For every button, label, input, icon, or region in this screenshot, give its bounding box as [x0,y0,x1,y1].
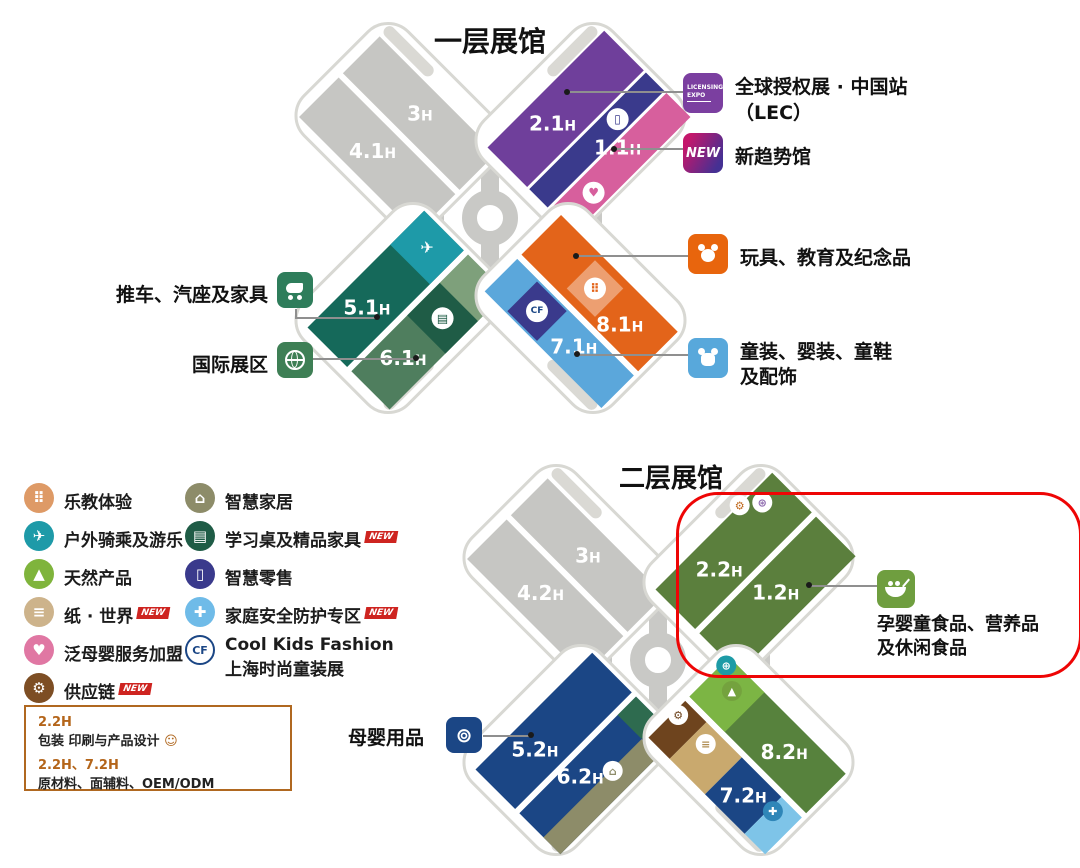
info-box-halls-1: 2.2H [38,715,278,730]
play-blocks-icon: ⠿ [24,483,54,513]
connector-dot [413,355,419,361]
label-kidswear: 童装、婴装、童鞋 [740,337,892,364]
legend-item-play-learning: ⠿ 乐教体验 [24,483,184,517]
globe-icon [277,342,313,378]
house-icon: ⌂ [185,483,215,513]
floor1-center-ring [462,190,518,246]
kidswear-animal-icon [688,338,728,378]
house-icon: ⌂ [602,761,622,781]
teddy-bear-icon [688,234,728,274]
shield-cross-icon: ✚ [762,801,782,821]
label-maternity-products: 母婴用品 [348,723,424,750]
gears-icon: ⚙ [24,673,54,703]
globe-icon: ⊕ [716,656,736,676]
connector-line [577,255,688,257]
info-box: 2.2H 包装 印刷与产品设计 ☺ 2.2H、7.2H 原材料、面辅料、OEM/… [24,705,292,791]
info-box-halls-2: 2.2H、7.2H [38,754,278,773]
connector-dot [574,351,580,357]
stroller-icon [277,272,313,308]
exhibition-floorplan: { "floor1": { "title": "一层展馆", "halls": … [0,0,1080,866]
legend-item-smart-home: ⌂ 智慧家居 [185,483,345,517]
connector-dot [806,582,812,588]
mountain-icon: ▲ [721,681,741,701]
study-desk-icon: ▤ [185,521,215,551]
paper-plane-icon: ✈ [24,521,54,551]
packaging-face-icon: ☺ [164,734,178,749]
label-new-trend-hall: 新趋势馆 [735,142,811,169]
mountain-icon: ▲ [24,559,54,589]
legend-item-smart-retail: ▯ 智慧零售 [185,559,345,593]
play-blocks-icon: ⠿ [583,278,605,300]
study-desk-icon: ▤ [431,307,453,329]
baby-food-icon [877,570,915,608]
connector-line [568,91,683,93]
connector-dot [528,732,534,738]
play-learning-zone: ⠿ [566,260,623,317]
legend-item-supply-chain: ⚙ 供应链NEW [24,673,184,707]
info-box-text-2: 原材料、面辅料、OEM/ODM [38,773,278,792]
new-tag: NEW [118,683,152,695]
smart-retail-icon: ▯ [606,108,628,130]
legend-item-family-safety: ✚ 家庭安全防护专区NEW [185,597,345,631]
legend-item-paper-world: ≡ 纸 · 世界NEW [24,597,184,631]
connector-line [810,585,878,587]
connector-dot [564,89,570,95]
label-kidswear-2: 及配饰 [740,362,797,389]
legend-item-cool-kids-fashion: CF Cool Kids Fashion上海时尚童装展 [185,635,345,683]
connector-line [313,358,417,360]
shield-cross-icon: ✚ [185,597,215,627]
paper-icon: ≡ [24,597,54,627]
connector-line [295,317,377,319]
label-toys-education: 玩具、教育及纪念品 [740,243,911,270]
connector-line [578,354,688,356]
legend-item-study-desk: ▤ 学习桌及精品家具NEW [185,521,345,555]
paper-plane-icon: ✈ [420,238,433,257]
new-tag: NEW [136,607,170,619]
label-licensing-expo: 全球授权展 · 中国站 [735,72,907,99]
cool-kids-fashion-icon: CF [526,300,548,322]
floor2-center-ring [630,632,686,688]
packaging-design-icon: ⊛ [752,492,772,512]
label-licensing-expo-2: （LEC） [735,98,812,125]
connector-dot [573,253,579,259]
connector-line [615,148,683,150]
licensing-expo-icon: LICENSING EXPO [683,73,723,113]
legend-item-maternity-franchise: ♥ 泛母婴服务加盟 [24,635,184,669]
cool-kids-fashion-icon: CF [185,635,215,665]
connector-dot [611,146,617,152]
legend-item-outdoor-ride: ✈ 户外骑乘及游乐 [24,521,184,555]
new-tag: NEW [364,607,398,619]
maternity-services-icon: ♥ [582,182,604,204]
legend-item-natural-products: ▲ 天然产品 [24,559,184,593]
pacifier-icon: ⊚ [446,717,482,753]
gears-icon: ⚙ [668,705,688,725]
label-international-zone: 国际展区 [150,350,268,377]
new-badge-icon: NEW [683,133,723,173]
connector-dot [374,314,380,320]
supply-chain-icon: ⚙ [729,495,749,515]
heart-icon: ♥ [24,635,54,665]
paper-icon: ≡ [695,734,715,754]
smart-retail-icon: ▯ [185,559,215,589]
new-tag: NEW [364,531,398,543]
label-strollers-carseats: 推车、汽座及家具 [90,280,268,307]
label-baby-food-2: 及休闲食品 [877,634,967,660]
label-baby-food: 孕婴童食品、营养品 [877,610,1039,636]
connector-line [483,735,531,737]
info-box-text-1: 包装 印刷与产品设计 ☺ [38,730,278,749]
